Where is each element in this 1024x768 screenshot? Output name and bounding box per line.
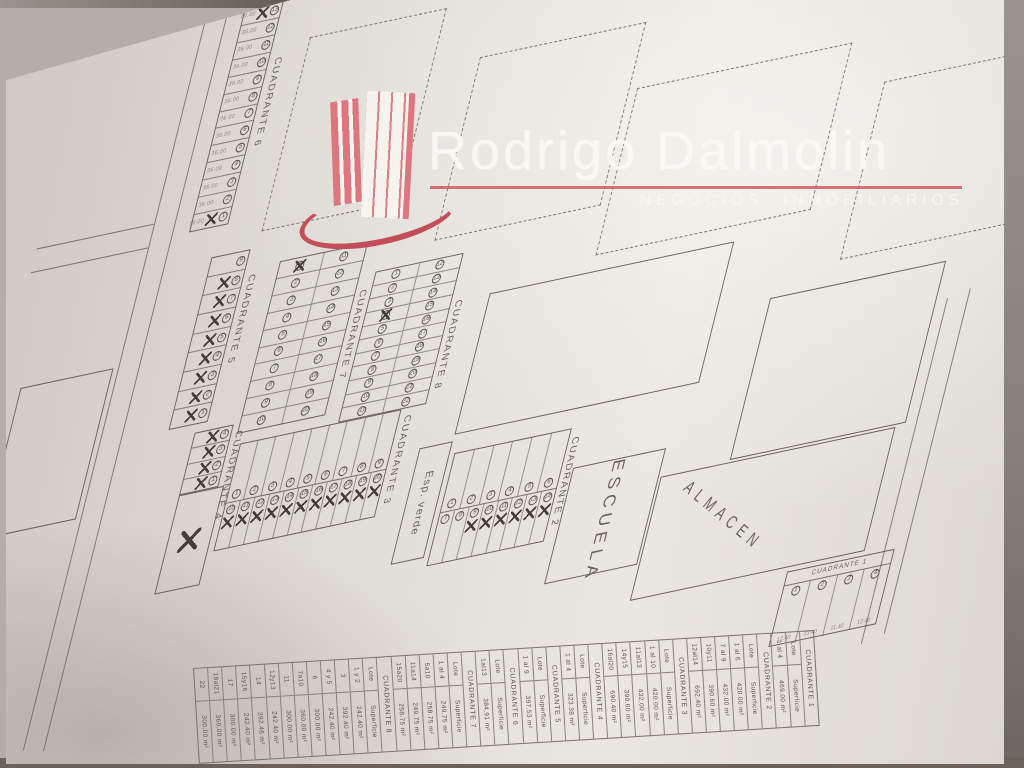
- table-header-text: CUADRANTE 6: [508, 667, 519, 726]
- table-cell-text: 384.91 m²: [482, 698, 491, 731]
- lot-number: 5: [235, 142, 246, 154]
- table-cell-text: 300.00 m²: [228, 714, 237, 747]
- lot-dimension: 36.00: [228, 79, 245, 89]
- sold-x-mark: [221, 515, 235, 529]
- sold-x-mark: [537, 503, 551, 517]
- table-cell: 7 al 9: [715, 636, 730, 670]
- table-cell-text: 16al20: [606, 648, 614, 670]
- lot-dimension: 36.00: [232, 62, 249, 72]
- lot-number: 7: [440, 513, 451, 525]
- sold-x-mark: [294, 500, 308, 514]
- lot-number: 5: [377, 323, 388, 335]
- table-cell-text: 690.40 m²: [608, 690, 617, 723]
- lot-number: 4: [219, 428, 230, 440]
- lot-number: 12: [434, 259, 445, 271]
- table-cell: 4 y 5: [321, 660, 336, 694]
- table-cell-text: 5a10: [423, 662, 431, 678]
- sold-x-mark: [494, 512, 508, 526]
- lot-number: 14: [427, 286, 438, 298]
- table-cell: 11al13: [631, 641, 646, 675]
- table-cell-text: 390.60 m²: [622, 689, 631, 722]
- table-cell: 18al21: [208, 667, 223, 701]
- table-cell-text: 22: [198, 680, 205, 688]
- table-cell: 7a10: [293, 662, 308, 696]
- sold-x-mark: [293, 259, 307, 273]
- table-header-text: CUADRANTE 2: [762, 652, 773, 711]
- photo-of-subdivision-plan: 36.001336.001236.001136.001036.00936.008…: [0, 0, 1024, 768]
- table-cell-text: 249.75 m²: [411, 702, 420, 735]
- table-cell: 12al14: [687, 638, 702, 672]
- lot-number: 19: [410, 355, 421, 367]
- logo-brand-name: Rodrigo Dalmolin: [428, 124, 890, 178]
- sold-x-mark: [479, 516, 493, 530]
- building-icon: [324, 88, 444, 228]
- table-cell-text: 1 al 9: [521, 655, 529, 674]
- lot-number: 6: [373, 337, 384, 349]
- lot-number: 13: [329, 285, 340, 297]
- lot-number: 9: [363, 378, 374, 390]
- table-cell-text: 242.40 m²: [327, 708, 336, 741]
- table-cell-text: Lote: [493, 659, 501, 674]
- table-cell-text: 1 al 4: [775, 640, 783, 659]
- lot-number: 1: [217, 211, 228, 223]
- lot-number: 6: [239, 125, 250, 137]
- lot-number: 5: [216, 331, 227, 343]
- lot-number: 10: [256, 56, 267, 68]
- table-cell-text: 4 y 5: [324, 668, 332, 684]
- lot-number: 8: [367, 364, 378, 376]
- table-cell: 22: [194, 668, 209, 702]
- table-header-text: CUADRANTE 7: [466, 670, 477, 729]
- lot-number: 3: [226, 176, 237, 188]
- lot-dimension: 36.00: [188, 217, 205, 227]
- lot-dimension: 36.00: [240, 11, 257, 21]
- sold-x-mark: [309, 497, 323, 511]
- lot-number: 19: [304, 388, 315, 400]
- lot-number: 1: [790, 585, 801, 597]
- sold-x-mark: [202, 445, 216, 459]
- sold-x-mark: [250, 509, 264, 523]
- lot-number: 9: [260, 397, 271, 409]
- table-cell-text: 323.38 m²: [566, 693, 575, 726]
- paper-sheet: 36.001336.001236.001136.001036.00936.008…: [6, 0, 1004, 764]
- lot-dimension: 36.00: [202, 182, 219, 192]
- lot-number: 15: [424, 300, 435, 312]
- lot-number: 7: [226, 293, 237, 305]
- table-cell-text: 469.00 m²: [777, 680, 786, 713]
- table-cell-text: 14y15: [620, 649, 628, 669]
- table-cell-text: 360.00 m²: [299, 709, 308, 742]
- lot-number: 3: [207, 369, 218, 381]
- lot-number: 4: [211, 350, 222, 362]
- lot-number: 4: [504, 485, 515, 497]
- lot-number: 1: [390, 268, 401, 280]
- lot-number: 14: [542, 492, 553, 504]
- sold-x-mark: [279, 503, 293, 517]
- lot-number: 18: [342, 479, 353, 491]
- lot-number: 8: [356, 462, 367, 474]
- lot-number: 17: [312, 354, 323, 366]
- lot-dimension: 36.00: [236, 44, 253, 54]
- lot-number: 14: [284, 491, 295, 503]
- sold-x-mark: [208, 313, 222, 327]
- lot-dimension: 36.00: [206, 165, 223, 175]
- table-cell-text: 420.00 m²: [651, 688, 660, 721]
- table-cell-text: 258.75 m²: [425, 701, 434, 734]
- table-cell-text: 15a20: [395, 662, 403, 682]
- table-cell: Lote: [490, 650, 505, 684]
- table-cell-text: Lote: [789, 641, 797, 656]
- lot-number: 10: [360, 391, 371, 403]
- table-cell-text: 392.46 m²: [256, 712, 265, 745]
- block-cuadrante-4-big-lot: [154, 486, 224, 595]
- table-cell: 1 al 6: [729, 635, 744, 669]
- sold-x-mark: [367, 484, 381, 498]
- table-cell-text: 12y13: [268, 670, 276, 690]
- table-cell-text: 6: [311, 675, 318, 679]
- sold-x-mark: [194, 476, 208, 490]
- empty-block: [454, 241, 734, 434]
- street-line: [31, 247, 149, 273]
- label-green-space: Esp. verde: [408, 469, 436, 536]
- table-cell-text: 242.40 m²: [355, 706, 364, 739]
- table-cell-text: Superficie: [665, 687, 674, 720]
- table-cell-text: Superficie: [453, 700, 462, 733]
- lot-number: 8: [230, 274, 241, 286]
- lot-surface-table: 22300.00 m²18al21360.00 m²17300.00 m²15y…: [193, 630, 820, 764]
- lot-number: 13: [431, 273, 442, 285]
- table-cell: 1 al 10: [645, 641, 660, 675]
- lot-number: 9: [252, 73, 263, 85]
- sold-x-mark: [323, 494, 337, 508]
- table-cell: Lote: [786, 632, 801, 666]
- lot-dimension: 36.00: [211, 148, 228, 158]
- lot-number: 3: [267, 481, 278, 493]
- lot-number: 11: [338, 251, 349, 263]
- table-cell-text: Lote: [747, 644, 755, 659]
- lot-number: 3: [843, 574, 854, 586]
- lot-number: 20: [407, 368, 418, 380]
- sold-x-mark: [217, 275, 231, 289]
- table-cell: 1 al 4: [433, 653, 448, 687]
- lot-number: 16: [317, 336, 328, 348]
- table-cell: 3: [335, 660, 350, 694]
- table-cell-text: Superficie: [749, 682, 758, 715]
- lot-number: 6: [273, 346, 284, 358]
- sold-x-mark: [206, 430, 220, 444]
- table-cell-text: 1 al 4: [564, 653, 572, 672]
- label-school: ESCUELA: [579, 457, 629, 585]
- table-cell-text: 432.00 m²: [637, 689, 646, 722]
- logo-underline: [430, 186, 962, 189]
- lot-number: 12: [334, 268, 345, 280]
- table-cell-text: 300.00 m²: [313, 708, 322, 741]
- table-cell-text: 17: [226, 679, 233, 687]
- table-cell: 15y16: [236, 666, 251, 700]
- table-cell: 14: [250, 665, 265, 699]
- table-cell: Lote: [659, 640, 674, 674]
- lot-number: 2: [290, 277, 301, 289]
- lot-number: 5: [277, 329, 288, 341]
- table-cell-text: Superficie: [369, 705, 378, 738]
- lot-number: 5: [302, 473, 313, 485]
- photo-background-right-edge: [1002, 0, 1024, 768]
- lot-number: 20: [299, 405, 310, 417]
- lot-dimension: 36.00: [241, 27, 258, 37]
- table-cell: 6: [307, 661, 322, 695]
- lot-number: 5: [524, 481, 535, 493]
- table-cell-text: 15y16: [240, 672, 248, 692]
- lot-number: 3: [485, 489, 496, 501]
- table-cell: 1al13: [476, 651, 491, 685]
- table-cell-text: 360.00 m²: [214, 714, 223, 747]
- lot-number: 9: [235, 255, 246, 267]
- lot-number: 2: [211, 459, 222, 471]
- table-cell-text: 3: [339, 674, 346, 678]
- lot-number: 2: [817, 579, 828, 591]
- lot-number: 4: [284, 477, 295, 489]
- sold-x-mark: [523, 506, 537, 520]
- lot-number: 17: [417, 327, 428, 339]
- table-cell: 16al20: [602, 643, 617, 677]
- table-cell-text: 258.75 m²: [397, 703, 406, 736]
- lot-number: 10: [226, 504, 237, 516]
- table-cell: 1 y 2: [349, 659, 364, 693]
- table-cell: 15a20: [391, 656, 406, 690]
- table-cell: 14y15: [617, 642, 632, 676]
- table-cell-text: Lote: [367, 667, 375, 682]
- table-cell-text: 1 al 4: [437, 660, 445, 679]
- lot-number: 11: [240, 500, 251, 512]
- table-cell-text: Lote: [662, 649, 670, 664]
- lot-number: 2: [387, 282, 398, 294]
- lot-number: 18: [308, 371, 319, 383]
- table-cell-text: 18al21: [211, 672, 219, 694]
- lot-number: 7: [370, 350, 381, 362]
- realtor-logo: Rodrigo Dalmolin NEGOCIOS INMOBILIARIOS: [300, 86, 992, 228]
- sold-x-mark: [338, 490, 352, 504]
- table-cell-text: 242.40 m²: [270, 711, 279, 744]
- table-cell: 1 al 9: [518, 648, 533, 682]
- table-header-text: CUADRANTE 8: [381, 675, 392, 734]
- lot-number: 8: [247, 91, 258, 103]
- sold-x-mark: [265, 506, 279, 520]
- table-cell-text: 397.53 m²: [524, 695, 533, 728]
- lot-number: 8: [454, 510, 465, 522]
- table-cell: 1 al 4: [560, 646, 575, 680]
- lot-dimension: 36.00: [198, 199, 215, 209]
- street-line: [37, 224, 155, 250]
- lot-number: 7: [269, 363, 280, 375]
- table-cell-text: 692.40 m²: [693, 685, 702, 718]
- table-cell-text: 300.00 m²: [284, 710, 293, 743]
- table-cell-text: 11: [282, 675, 289, 683]
- table-cell: Lote: [363, 658, 378, 692]
- lot-number: 10: [256, 414, 267, 426]
- lot-number: 4: [870, 568, 881, 580]
- lot-dimension: 11.40: [829, 623, 844, 632]
- table-cell: 11a14: [405, 655, 420, 689]
- table-cell-text: 392.40 m²: [341, 707, 350, 740]
- lot-dimension: 12.40: [856, 617, 871, 626]
- lot-number: 21: [403, 382, 414, 394]
- table-cell-text: 1 al 6: [733, 642, 741, 661]
- lot-number: 20: [371, 473, 382, 485]
- lot-number: 12: [265, 22, 276, 34]
- table-cell-text: 1 y 2: [352, 667, 360, 683]
- lot-number: 10: [483, 504, 494, 516]
- lot-number: 2: [249, 484, 260, 496]
- table-cell: Lote: [743, 635, 758, 669]
- lot-number: 12: [513, 498, 524, 510]
- lot-number: 4: [282, 311, 293, 323]
- lot-number: 8: [264, 380, 275, 392]
- lot-number: 7: [338, 465, 349, 477]
- lot-dimension: 36.00: [215, 130, 232, 140]
- sold-x-mark: [184, 409, 198, 423]
- sold-x-mark: [464, 519, 478, 533]
- table-cell-text: 432.00 m²: [721, 683, 730, 716]
- lot-number: 2: [465, 493, 476, 505]
- table-cell: Lote: [574, 645, 589, 679]
- lot-number: 1: [207, 475, 218, 487]
- table-cell: 5a10: [419, 654, 434, 688]
- table-cell-text: 7 al 9: [719, 643, 727, 662]
- table-cell-text: 14: [254, 677, 261, 685]
- lot-number: 13: [269, 5, 280, 17]
- sold-x-mark: [189, 390, 203, 404]
- lot-dimension: 36.00: [219, 113, 236, 123]
- lot-number: 16: [313, 485, 324, 497]
- building-icon-left-tower: [330, 98, 362, 206]
- lot-number: 9: [469, 507, 480, 519]
- lot-number: 19: [357, 476, 368, 488]
- lot-number: 9: [373, 458, 384, 470]
- lot-number: 18: [414, 341, 425, 353]
- lot-number: 4: [230, 159, 241, 171]
- sold-x-mark: [194, 371, 208, 385]
- table-cell: 12y13: [264, 664, 279, 698]
- table-cell-text: 10y11: [704, 644, 712, 664]
- lot-number: 7: [243, 108, 254, 120]
- table-cell-text: Superficie: [496, 697, 505, 730]
- sold-x-mark: [198, 460, 212, 474]
- lot-number: 1: [197, 408, 208, 420]
- table-cell-text: 390.60 m²: [707, 684, 716, 717]
- table-cell: Lote: [448, 653, 463, 687]
- lot-number: 17: [328, 482, 339, 494]
- sold-x-mark: [352, 487, 366, 501]
- sold-x-mark: [177, 527, 202, 553]
- lot-number: 2: [222, 194, 233, 206]
- table-cell: 17: [222, 666, 237, 700]
- lot-number: 2: [202, 388, 213, 400]
- table-cell: 10y11: [701, 637, 716, 671]
- lot-number: 16: [420, 314, 431, 326]
- table-header-text: CUADRANTE 3: [677, 657, 688, 716]
- table-cell: 1 al 4: [771, 633, 786, 667]
- sold-x-mark: [236, 512, 250, 526]
- lot-number: 15: [321, 319, 332, 331]
- table-cell-text: Superficie: [538, 695, 547, 728]
- lot-number: 11: [260, 39, 271, 51]
- sold-x-mark: [198, 352, 212, 366]
- lot-number: 3: [286, 294, 297, 306]
- lot-number: 1: [231, 488, 242, 500]
- lot-number: 1: [446, 498, 457, 510]
- lot-number: 6: [543, 477, 554, 489]
- table-cell-text: 11a14: [409, 662, 417, 682]
- table-cell-text: Lote: [578, 654, 586, 669]
- lot-number: 15: [298, 488, 309, 500]
- lot-number: 6: [320, 469, 331, 481]
- table-cell-text: 242.40 m²: [242, 713, 251, 746]
- table-cell-text: Lote: [536, 656, 544, 671]
- lot-number: 6: [221, 312, 232, 324]
- logo-tagline: NEGOCIOS INMOBILIARIOS: [628, 192, 964, 210]
- table-cell-text: 420.00 m²: [735, 683, 744, 716]
- label-warehouse: ALMACEN: [679, 477, 766, 555]
- table-cell-text: 12al14: [690, 643, 698, 665]
- lot-number: 13: [527, 495, 538, 507]
- sold-x-mark: [203, 332, 217, 346]
- lot-number: 14: [325, 302, 336, 314]
- lot-number: 13: [269, 494, 280, 506]
- table-cell-text: 1al13: [479, 658, 487, 676]
- table-header-text: CUADRANTE 5: [550, 665, 561, 724]
- lot-number: 3: [384, 296, 395, 308]
- sold-x-mark: [213, 294, 227, 308]
- table-cell-text: 300.00 m²: [200, 715, 209, 748]
- lot-number: 12: [255, 497, 266, 509]
- lot-number: 22: [400, 396, 411, 408]
- table-header-text: CUADRANTE 1: [804, 649, 815, 708]
- lot-number: 3: [215, 444, 226, 456]
- lot-number: 11: [356, 405, 367, 417]
- table-cell-text: 11al13: [634, 647, 642, 669]
- table-cell-text: 1 al 10: [648, 646, 656, 669]
- table-cell-text: 7a10: [296, 670, 304, 686]
- table-cell-text: 249.75 m²: [439, 701, 448, 734]
- sold-x-mark: [204, 212, 218, 226]
- lot-dimension: 36.00: [223, 96, 240, 106]
- sold-x-mark: [508, 509, 522, 523]
- table-cell-text: Superficie: [580, 692, 589, 725]
- table-cell: 11: [279, 663, 294, 697]
- lot-number: 11: [498, 501, 509, 513]
- table-cell-text: Superficie: [791, 679, 800, 712]
- table-cell-text: Lote: [451, 662, 459, 677]
- table-header-text: CUADRANTE 4: [593, 662, 604, 721]
- table-cell: Lote: [532, 647, 547, 681]
